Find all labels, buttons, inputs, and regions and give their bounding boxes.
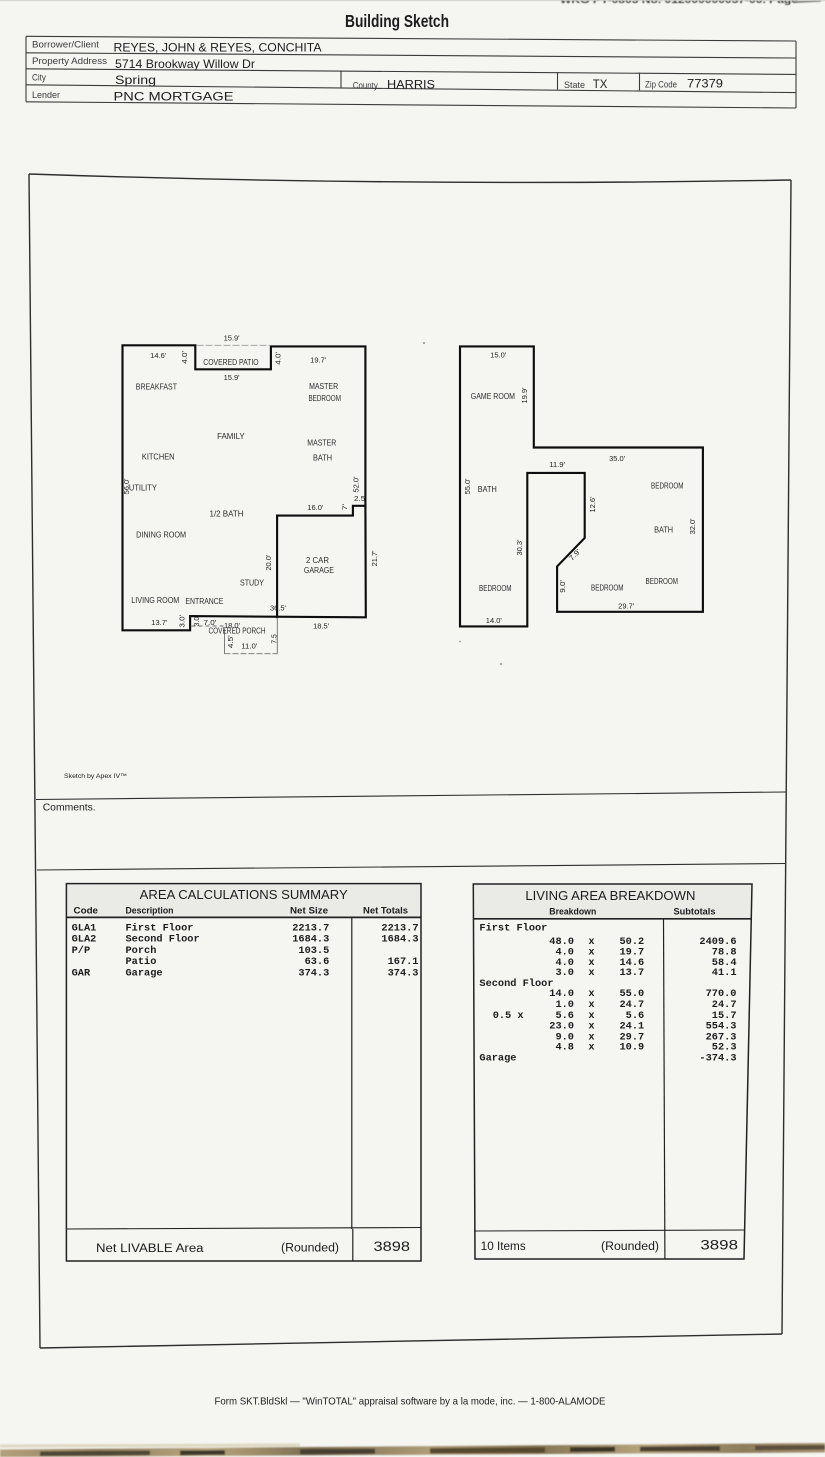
svg-text:16.0': 16.0' <box>307 503 324 512</box>
svg-text:Property Address: Property Address <box>32 56 107 66</box>
svg-text:BEDROOM: BEDROOM <box>479 583 512 593</box>
svg-text:1684.3: 1684.3 <box>292 934 329 946</box>
svg-text:GAR: GAR <box>72 967 91 979</box>
svg-text:35.0': 35.0' <box>609 454 626 463</box>
svg-text:City: City <box>32 73 46 83</box>
svg-text:FAMILY: FAMILY <box>217 431 245 441</box>
svg-text:LIVING ROOM: LIVING ROOM <box>131 595 179 605</box>
svg-text:4.0': 4.0' <box>180 350 189 363</box>
svg-text:BATH: BATH <box>654 524 673 534</box>
svg-text:52.0': 52.0' <box>352 476 361 493</box>
svg-text:Second Floor: Second Floor <box>479 978 553 990</box>
svg-text:GLA1: GLA1 <box>72 923 97 935</box>
svg-text:ENTRANCE: ENTRANCE <box>185 596 223 606</box>
svg-text:First Floor: First Floor <box>126 923 194 935</box>
svg-text:MASTER: MASTER <box>309 381 338 391</box>
svg-text:14.0': 14.0' <box>486 616 503 625</box>
svg-text:4.5': 4.5' <box>226 635 235 648</box>
svg-text:UTILITY: UTILITY <box>129 483 157 493</box>
svg-text:Garage: Garage <box>126 967 163 979</box>
svg-text:Building Sketch: Building Sketch <box>345 11 449 31</box>
svg-text:1684.3: 1684.3 <box>381 934 418 946</box>
svg-text:2 CAR: 2 CAR <box>306 555 329 565</box>
svg-text:14.6': 14.6' <box>150 351 167 360</box>
svg-text:11.0': 11.0' <box>241 642 258 651</box>
svg-text:HARRIS: HARRIS <box>387 77 435 91</box>
svg-text:Comments.: Comments. <box>43 802 96 814</box>
svg-text:2213.7: 2213.7 <box>292 923 329 935</box>
svg-text:36.5': 36.5' <box>270 604 287 613</box>
svg-text:10.9: 10.9 <box>619 1042 644 1054</box>
svg-text:3.0: 3.0 <box>555 967 574 979</box>
svg-text:Patio: Patio <box>126 956 157 968</box>
svg-text:18.5': 18.5' <box>313 622 330 631</box>
svg-text:Sketch by Apex IV™: Sketch by Apex IV™ <box>64 773 127 780</box>
svg-text:30.3': 30.3' <box>515 539 524 556</box>
svg-text:0.5 x: 0.5 x <box>493 1010 524 1022</box>
svg-text:BEDROOM: BEDROOM <box>651 481 684 491</box>
svg-text:7.0': 7.0' <box>204 618 217 627</box>
svg-text:56.0': 56.0' <box>122 478 131 495</box>
svg-text:13.7: 13.7 <box>619 967 644 979</box>
svg-text:Borrower/Client: Borrower/Client <box>32 40 99 50</box>
svg-text:Second Floor: Second Floor <box>126 934 200 946</box>
svg-text:Spring: Spring <box>115 73 156 87</box>
svg-text:Lender: Lender <box>32 90 60 100</box>
svg-text:First Floor: First Floor <box>479 922 547 934</box>
svg-text:BATH: BATH <box>313 452 332 462</box>
svg-text:KITCHEN: KITCHEN <box>142 452 175 462</box>
svg-text:AREA CALCULATIONS SUMMARY: AREA CALCULATIONS SUMMARY <box>140 888 349 902</box>
svg-text:Subtotals: Subtotals <box>674 907 716 917</box>
svg-text:374.3: 374.3 <box>388 967 419 979</box>
svg-text:Garage: Garage <box>479 1053 516 1065</box>
svg-text:19.7': 19.7' <box>310 355 327 364</box>
svg-text:3.0: 3.0 <box>192 617 201 627</box>
svg-text:19.9': 19.9' <box>520 387 529 404</box>
svg-text:BEDROOM: BEDROOM <box>646 576 679 586</box>
svg-text:Zip Code: Zip Code <box>645 80 677 90</box>
svg-text:Net Size: Net Size <box>290 906 328 916</box>
svg-text:State: State <box>564 80 585 90</box>
svg-text:Breakdown: Breakdown <box>549 907 596 917</box>
svg-text:77379: 77379 <box>687 77 723 91</box>
svg-text:7.5: 7.5 <box>270 634 279 644</box>
svg-text:LIVING AREA BREAKDOWN: LIVING AREA BREAKDOWN <box>525 889 695 903</box>
svg-text:PNC MORTGAGE: PNC MORTGAGE <box>114 90 234 104</box>
svg-text:x: x <box>588 967 594 979</box>
svg-text:10 Items: 10 Items <box>481 1241 526 1253</box>
svg-text:COVERED PATIO: COVERED PATIO <box>203 357 259 367</box>
svg-text:15.0': 15.0' <box>490 351 507 360</box>
svg-text:15.9': 15.9' <box>224 373 241 382</box>
svg-text:11.9': 11.9' <box>549 460 566 469</box>
svg-text:5714 Brookway Willow Dr: 5714 Brookway Willow Dr <box>115 57 255 71</box>
svg-text:374.3: 374.3 <box>298 967 329 979</box>
svg-text:TX: TX <box>593 77 608 91</box>
svg-text:BATH: BATH <box>478 484 497 494</box>
svg-text:GARAGE: GARAGE <box>304 565 334 575</box>
svg-text:32.0': 32.0' <box>688 518 697 535</box>
svg-text:Net LIVABLE Area: Net LIVABLE Area <box>96 1243 204 1255</box>
svg-text:3898: 3898 <box>700 1238 738 1253</box>
svg-text:21.7': 21.7' <box>370 550 379 567</box>
svg-text:BREAKFAST: BREAKFAST <box>136 381 177 391</box>
svg-text:Code: Code <box>74 906 99 916</box>
svg-text:REYES, JOHN & REYES, CONCHITA: REYES, JOHN & REYES, CONCHITA <box>114 41 322 55</box>
svg-text:x: x <box>588 1042 594 1054</box>
svg-text:55.0': 55.0' <box>463 478 472 495</box>
svg-text:18.0': 18.0' <box>224 621 241 630</box>
svg-text:GAME ROOM: GAME ROOM <box>471 391 515 401</box>
svg-text:GLA2: GLA2 <box>72 934 97 946</box>
svg-text:9.0': 9.0' <box>558 579 567 592</box>
svg-text:29.7': 29.7' <box>618 602 635 611</box>
svg-text:2213.7: 2213.7 <box>381 923 418 935</box>
svg-text:41.1: 41.1 <box>712 967 737 979</box>
svg-text:1/2 BATH: 1/2 BATH <box>210 509 244 519</box>
svg-text:63.6: 63.6 <box>305 956 330 968</box>
svg-text:BEDROOM: BEDROOM <box>308 393 341 403</box>
svg-text:2.5': 2.5' <box>354 494 367 503</box>
svg-text:15.9': 15.9' <box>224 334 241 343</box>
svg-text:County: County <box>353 80 378 90</box>
svg-text:Form SKT.BldSkl — "WinTOTAL" a: Form SKT.BldSkl — "WinTOTAL" appraisal s… <box>215 1396 606 1408</box>
svg-text:7': 7' <box>343 504 349 510</box>
svg-text:(Rounded): (Rounded) <box>601 1241 659 1253</box>
svg-text:Description: Description <box>126 906 174 916</box>
svg-text:4.8: 4.8 <box>555 1042 574 1054</box>
svg-text:MASTER: MASTER <box>307 438 336 448</box>
svg-text:3.0': 3.0' <box>178 614 187 627</box>
svg-text:DINING ROOM: DINING ROOM <box>136 530 186 540</box>
svg-text:3898: 3898 <box>374 1239 411 1254</box>
svg-text:STUDY: STUDY <box>240 577 264 587</box>
svg-text:BEDROOM: BEDROOM <box>591 583 624 593</box>
svg-text:20.0': 20.0' <box>264 554 273 571</box>
svg-text:12.6': 12.6' <box>588 496 597 513</box>
svg-text:13.7': 13.7' <box>151 618 168 627</box>
svg-text:Net Totals: Net Totals <box>363 906 408 916</box>
svg-text:4.0': 4.0' <box>274 351 283 364</box>
svg-text:167.1: 167.1 <box>388 956 419 968</box>
svg-text:-374.3: -374.3 <box>699 1053 736 1065</box>
svg-text:P/P: P/P <box>72 945 91 957</box>
svg-text:(Rounded): (Rounded) <box>281 1243 339 1255</box>
